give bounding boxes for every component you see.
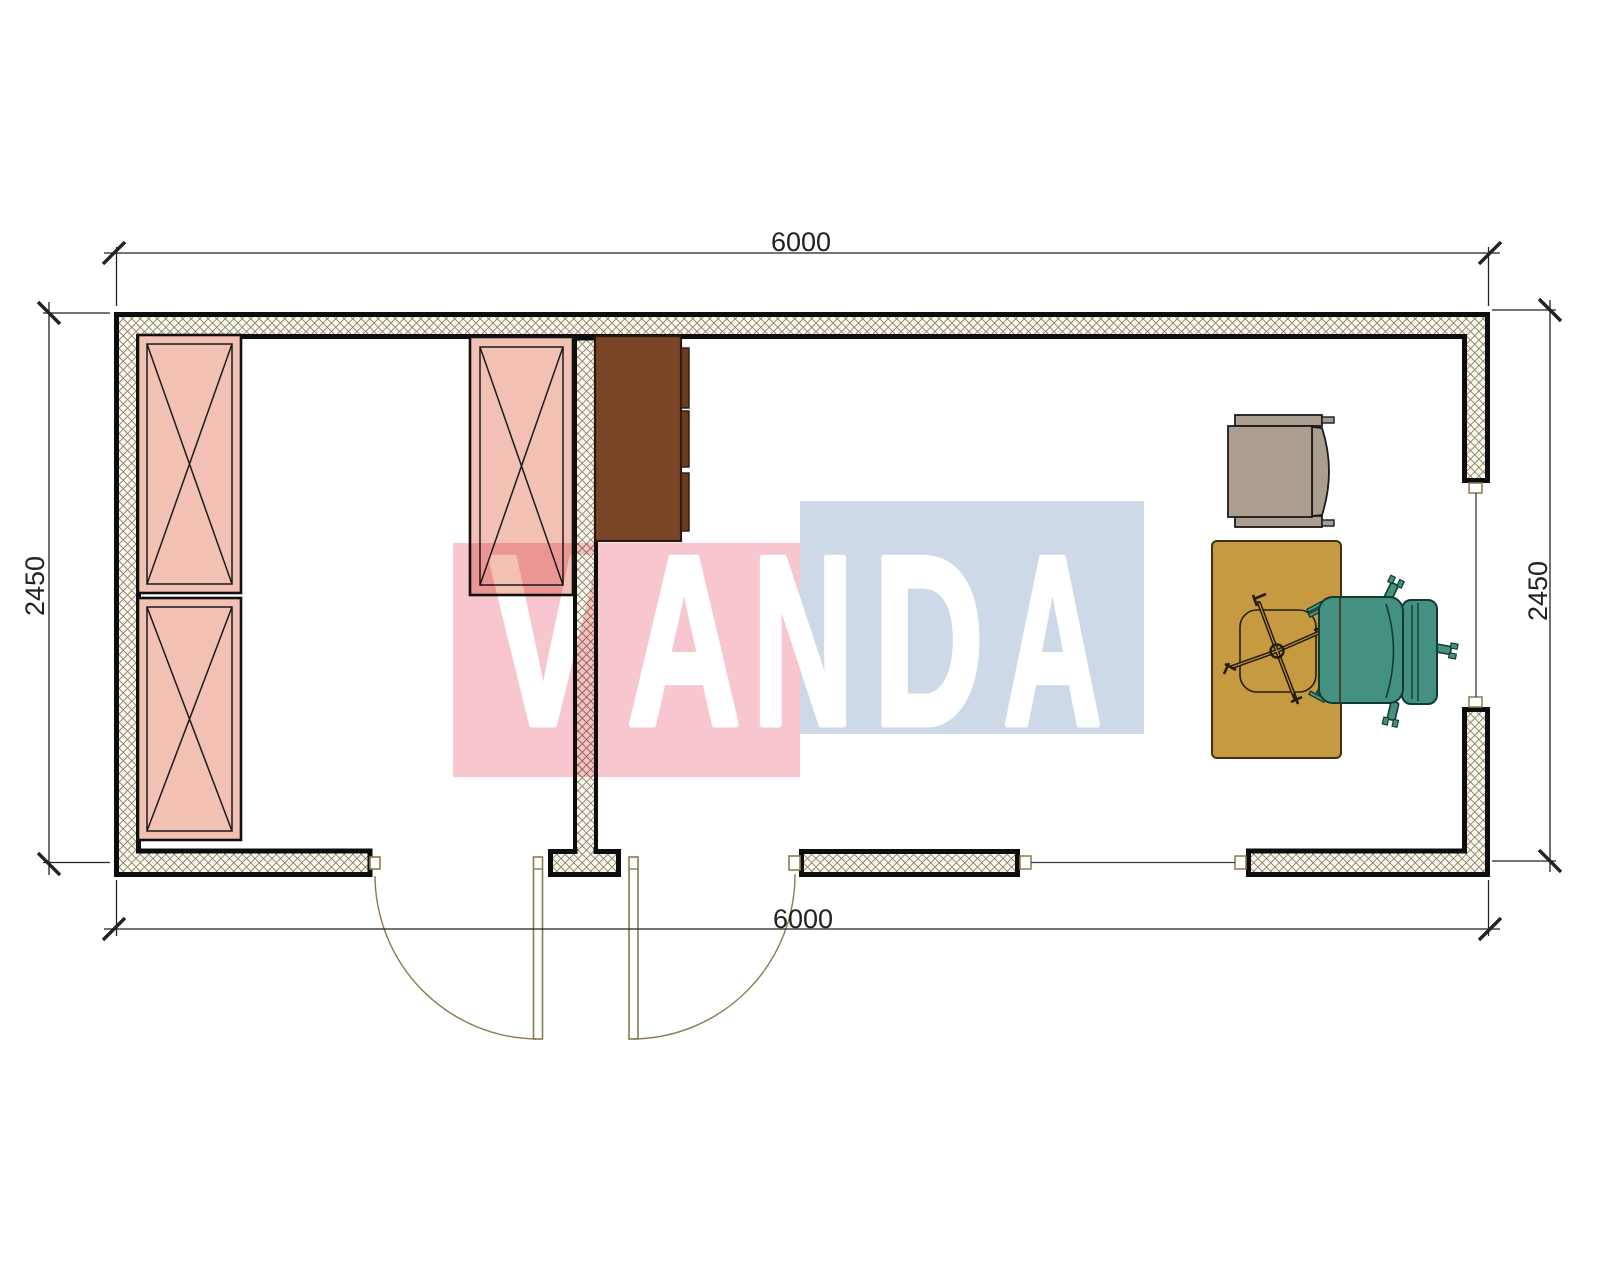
svg-text:6000: 6000: [773, 904, 833, 934]
svg-text:2450: 2450: [1523, 561, 1553, 621]
svg-text:6000: 6000: [771, 227, 831, 257]
svg-text:2450: 2450: [20, 556, 50, 616]
